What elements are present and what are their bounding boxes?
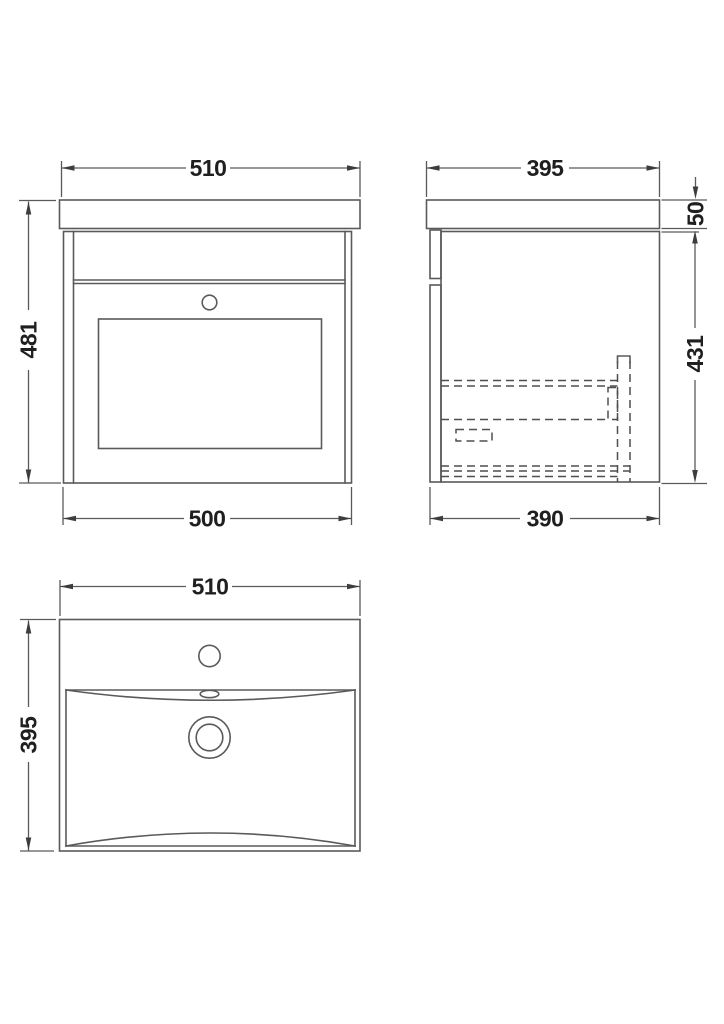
plan-tap-hole [199,645,220,666]
side-drawer-front-edge [430,230,441,279]
arrowhead [26,621,32,634]
dim-label-front-width-bottom: 500 [189,506,226,532]
arrowhead [693,187,699,200]
dim-plan-depth: 395 [16,620,708,852]
arrowhead [26,202,32,215]
front-elevation-view: 510 481 500 [16,155,361,532]
side-elevation-view: 395 50 431 390 [427,155,709,532]
basin-plan-view: 510 395 [16,574,708,852]
arrowhead [430,516,443,522]
plan-waste-outer [189,717,230,758]
dim-front-width-bottom: 500 [63,487,352,532]
arrowhead [647,516,660,522]
arrowhead [26,838,32,851]
arrowhead [339,516,352,522]
arrowhead [347,165,360,171]
dim-side-depth-top: 395 [427,155,660,197]
arrowhead [63,516,76,522]
arrowhead [26,470,32,483]
front-cabinet [64,232,352,484]
plan-bowl-curve-bottom [66,833,355,846]
dim-label-plan-width: 510 [192,574,229,600]
rail-top-cap [618,356,631,363]
side-worktop [427,200,660,229]
dim-label-front-width-top: 510 [190,155,227,181]
arrowhead [647,165,660,171]
dim-label-plan-depth: 395 [16,716,42,754]
front-door-recessed-panel [99,319,322,449]
technical-drawing-page: 510 481 500 [0,0,724,1024]
dim-side-worktop-thickness: 50 [662,177,709,232]
front-worktop [60,200,361,229]
arrowhead [692,470,698,483]
dim-side-depth-bottom: 390 [430,487,660,532]
dim-label-side-depth-top: 395 [527,155,565,181]
arrowhead [427,165,440,171]
dim-label-side-carcass-height: 431 [682,335,708,373]
dim-plan-width: 510 [60,574,360,617]
arrowhead [60,584,73,590]
side-door-front-edge [430,285,441,482]
dim-front-width-top: 510 [62,155,361,197]
arrowhead [62,165,75,171]
dim-label-front-height: 481 [16,321,42,359]
dim-side-carcass-height: 431 [662,231,709,484]
hidden-runner-bracket [608,388,618,420]
dim-label-side-depth-bottom: 390 [527,506,564,532]
front-knob-circle [202,295,217,310]
plan-overflow-slot [200,690,219,697]
arrowhead [347,584,360,590]
dim-label-side-worktop-thickness: 50 [683,202,709,227]
hidden-fixing-block [456,430,492,442]
dim-front-height: 481 [16,201,62,484]
vanity-unit-dimension-drawing: 510 481 500 [0,0,724,1024]
side-hidden-drawer-detail [441,356,630,482]
